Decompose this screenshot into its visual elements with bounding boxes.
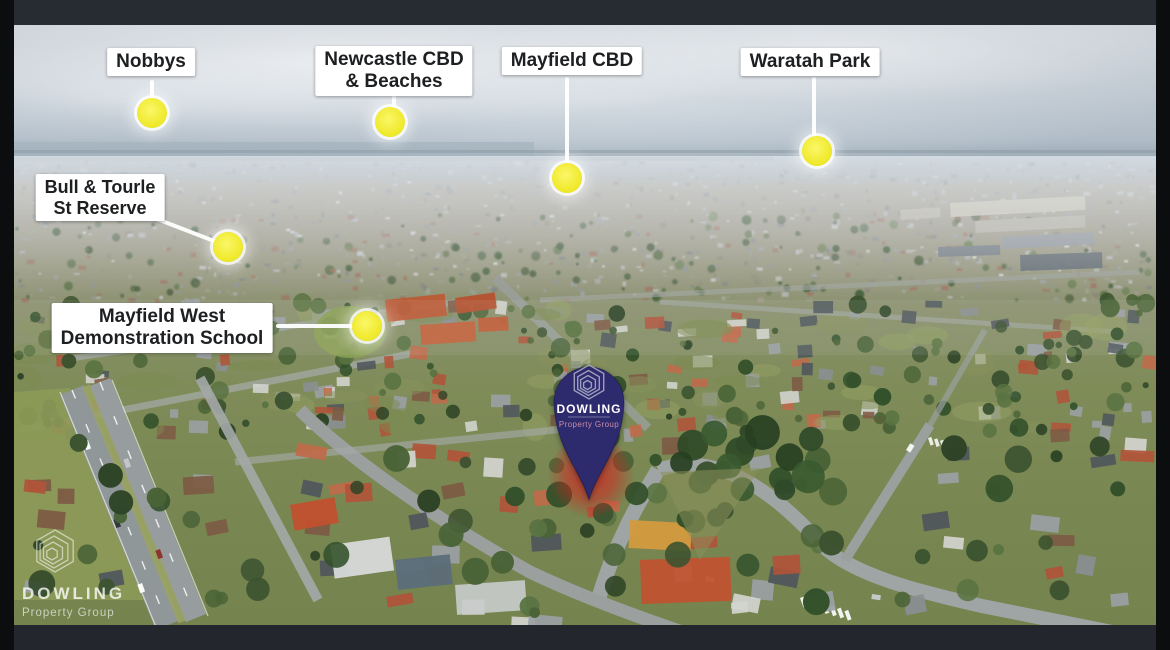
pin-subtitle: Property Group — [559, 420, 619, 429]
label-line: Nobbys — [116, 51, 186, 73]
label-mayfield-west-school: Mayfield West Demonstration School — [52, 303, 273, 353]
watermark-subtitle: Property Group — [22, 607, 125, 619]
label-line: Bull & Tourle — [45, 177, 156, 198]
label-line: Mayfield CBD — [511, 50, 633, 72]
leader-line-mayfield-west — [276, 324, 356, 328]
letterbox-right — [1156, 0, 1170, 650]
label-mayfield-cbd: Mayfield CBD — [502, 47, 642, 75]
map-marker-newcastle — [375, 107, 405, 137]
map-marker-waratah — [802, 136, 832, 166]
pin-brand: DOWLING — [557, 402, 622, 416]
letterbox-left — [0, 0, 14, 650]
label-line: St Reserve — [45, 198, 156, 219]
map-marker-mayfield-cbd — [552, 163, 582, 193]
label-waratah-park: Waratah Park — [741, 48, 880, 76]
label-line: Waratah Park — [750, 51, 871, 73]
leader-line-waratah — [812, 77, 816, 140]
label-line: Newcastle CBD — [324, 49, 463, 71]
watermark-house-icon — [22, 527, 86, 577]
letterbox-bottom — [0, 625, 1170, 650]
map-marker-nobbys — [137, 98, 167, 128]
label-nobbys: Nobbys — [107, 48, 195, 76]
aerial-map-flyer: Nobbys Newcastle CBD & Beaches Mayfield … — [0, 0, 1170, 650]
map-marker-bull-tourle — [213, 232, 243, 262]
label-line: Mayfield West — [61, 306, 264, 328]
watermark-brand: DOWLING — [22, 584, 125, 604]
leader-line-mayfield-cbd — [565, 77, 569, 167]
letterbox-top — [0, 0, 1170, 25]
property-pin: DOWLING Property Group — [551, 350, 627, 502]
label-line: Demonstration School — [61, 328, 264, 350]
label-line: & Beaches — [324, 71, 463, 93]
watermark-logo: DOWLING Property Group — [22, 527, 125, 619]
map-marker-mayfield-west — [352, 311, 382, 341]
label-bull-tourle-st-reserve: Bull & Tourle St Reserve — [36, 174, 165, 221]
pin-body — [554, 367, 624, 500]
label-newcastle-cbd-beaches: Newcastle CBD & Beaches — [315, 46, 472, 96]
